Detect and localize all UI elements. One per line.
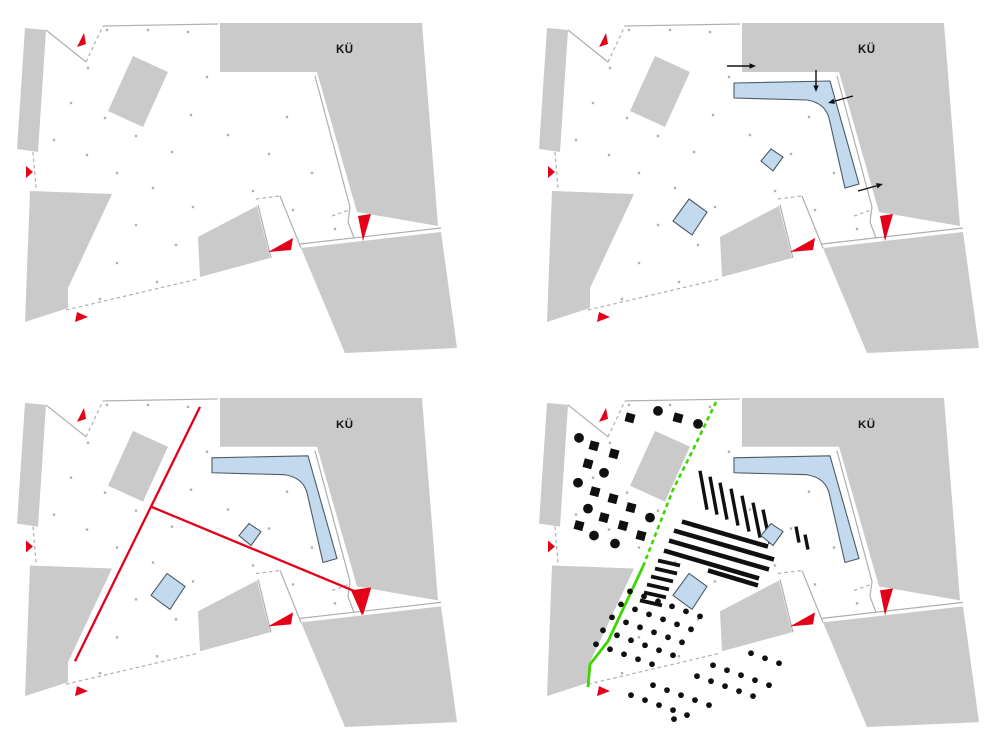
entrance-arrow-west <box>26 166 33 178</box>
steps-bar <box>651 576 673 581</box>
plaza-dot <box>106 404 108 406</box>
planting-dot <box>632 606 638 612</box>
plaza-dot <box>728 76 730 78</box>
plaza-dot <box>206 451 208 453</box>
steps-bar <box>644 592 666 597</box>
plaza-dot <box>104 491 106 493</box>
tree-circle <box>653 406 663 416</box>
plan-group: KÜ <box>17 23 457 353</box>
ku-label: KÜ <box>336 418 354 431</box>
new-pavilion-large <box>673 199 707 235</box>
building-block-ku <box>742 23 960 226</box>
entrance-arrow-southwest <box>75 686 88 696</box>
building-block-southeast <box>823 232 979 353</box>
plaza-dot <box>252 564 254 566</box>
building-block-south <box>198 206 270 277</box>
plaza-dot <box>86 528 88 530</box>
tree-square <box>598 512 609 523</box>
plaza-dot <box>87 67 89 69</box>
plaza-dot <box>638 262 640 264</box>
plaza-dot <box>609 442 611 444</box>
plaza-dot <box>171 525 173 527</box>
planting-dot <box>656 702 662 708</box>
plaza-dot <box>638 172 640 174</box>
entrance-arrow-west <box>548 541 555 553</box>
plaza-dot <box>334 602 336 604</box>
plaza-dot <box>156 281 158 283</box>
site-diagram-grid: KÜ KÜ KÜ KÜ <box>0 0 1000 749</box>
plot-boundary-dashed <box>555 527 558 563</box>
plot-boundary-dashed <box>608 26 625 62</box>
plot-boundary-dashed <box>588 279 720 310</box>
plot-boundary <box>103 24 218 26</box>
plaza-dot <box>749 134 751 136</box>
plot-boundary-dashed <box>778 196 802 199</box>
plaza-dot <box>87 442 89 444</box>
planting-dot <box>664 687 670 693</box>
planting-dot <box>708 678 714 684</box>
paving-bar <box>710 477 717 515</box>
tree-square <box>582 458 593 469</box>
plaza-dot <box>669 29 671 31</box>
tree-square <box>635 530 646 541</box>
building-block-northwest <box>108 56 168 127</box>
tree-circle <box>573 478 583 488</box>
plaza-dot <box>638 546 640 548</box>
plaza-dot <box>334 228 336 230</box>
planting-dot <box>600 627 606 633</box>
entrance-arrow-north <box>77 408 86 422</box>
paving-bar <box>753 503 760 538</box>
planting-dot <box>678 692 684 698</box>
plaza-dot <box>678 655 680 657</box>
ku-label: KÜ <box>336 43 354 56</box>
entrance-arrow-south-center <box>268 612 293 626</box>
plaza-dot <box>286 116 288 118</box>
planting-dot <box>651 629 657 635</box>
paving-bar <box>731 489 738 526</box>
steps-bar <box>658 561 680 566</box>
building-block-ku <box>220 398 438 600</box>
plaza-dot <box>175 244 177 246</box>
planting-dot <box>724 667 730 673</box>
tree-square <box>617 520 628 531</box>
tree-square <box>573 520 584 531</box>
planting-dot <box>623 619 629 625</box>
plaza-dot <box>749 508 751 510</box>
building-block-northwest <box>630 56 690 127</box>
plaza-dot <box>608 154 610 156</box>
planting-dot <box>752 677 758 683</box>
planting-dot <box>736 688 742 694</box>
planting-dot <box>642 642 648 648</box>
plaza-dot <box>790 527 792 529</box>
plaza-dot <box>152 561 154 563</box>
entrance-arrow-southwest <box>75 312 88 322</box>
building-block-south <box>198 580 270 651</box>
planting-dot <box>641 594 647 600</box>
plaza-dot <box>311 172 313 174</box>
entrance-arrow-south-center <box>790 612 815 626</box>
plaza-dot <box>774 190 776 192</box>
plot-boundary-dashed <box>555 152 558 188</box>
planting-dot <box>670 652 676 658</box>
planting-dot <box>646 611 652 617</box>
planting-dot <box>593 641 599 647</box>
entrance-arrow-south-center <box>268 238 293 252</box>
plaza-dot <box>621 298 623 300</box>
site-plan-existing: KÜ <box>0 0 500 375</box>
plaza-dot <box>135 598 137 600</box>
tree-square <box>624 412 635 423</box>
plaza-dot <box>116 172 118 174</box>
plot-boundary-dashed <box>854 210 871 216</box>
panel-existing-site: KÜ <box>0 0 500 375</box>
entrance-arrow-north <box>599 33 608 47</box>
plaza-dot <box>714 206 716 208</box>
plaza-dot <box>638 636 640 638</box>
plaza-dot <box>116 546 118 548</box>
plaza-dot <box>709 406 711 408</box>
plaza-dot <box>608 528 610 530</box>
plaza-dot <box>575 139 577 141</box>
entrance-arrow-west <box>548 166 555 178</box>
plaza-dot <box>814 583 816 585</box>
plaza-dot <box>190 114 192 116</box>
entrance-arrow-west <box>26 541 33 553</box>
plot-boundary-dashed <box>778 570 802 573</box>
tree-circle <box>645 513 655 523</box>
planting-dot <box>635 656 641 662</box>
site-plan-landscape: KÜ <box>500 375 1000 749</box>
plaza-dot <box>712 114 714 116</box>
plaza-dot <box>268 153 270 155</box>
planting-dot <box>750 693 756 699</box>
building-strip-west <box>539 403 568 527</box>
planting-dot <box>607 646 613 652</box>
plaza-dot <box>156 655 158 657</box>
plaza-dot <box>657 509 659 511</box>
building-block-south <box>720 206 792 277</box>
plaza-dot <box>626 117 628 119</box>
planting-dot <box>609 614 615 620</box>
planting-dot <box>665 634 671 640</box>
planting-dot <box>694 673 700 679</box>
steps-bar <box>647 584 669 589</box>
plaza-dot <box>192 206 194 208</box>
tree-square <box>625 502 636 513</box>
planting-dot <box>692 697 698 703</box>
plot-boundary-dashed <box>86 401 103 437</box>
plaza-dot <box>808 490 810 492</box>
new-pavilion-large <box>673 573 707 609</box>
planting-dot <box>627 589 633 595</box>
plaza-dot <box>192 580 194 582</box>
tree-square <box>672 412 683 423</box>
plaza-dot <box>147 404 149 406</box>
planting-dot <box>669 603 675 609</box>
building-strip-west <box>539 28 568 152</box>
building-block-ku <box>742 398 960 600</box>
plaza-dot <box>592 102 594 104</box>
planting-dot <box>748 650 754 656</box>
planting-dot <box>642 697 648 703</box>
plaza-dot <box>206 76 208 78</box>
plaza-dot <box>147 29 149 31</box>
planting-dot <box>670 707 676 713</box>
paving-bar <box>796 527 799 543</box>
plot-boundary <box>625 24 740 26</box>
planting-dot <box>697 613 703 619</box>
new-pavilion-small <box>761 149 783 171</box>
plot-boundary-dashed <box>33 527 36 563</box>
plaza-dot <box>227 508 229 510</box>
plaza-dot <box>135 224 137 226</box>
planting-dot <box>618 601 624 607</box>
plaza-dot <box>714 580 716 582</box>
tree-circle <box>610 539 620 549</box>
paving-stripe <box>682 522 768 547</box>
plaza-dot <box>187 31 189 33</box>
tree-square <box>607 493 618 504</box>
building-strip-west <box>17 403 46 527</box>
planting-dot <box>722 683 728 689</box>
planting-dot <box>674 621 680 627</box>
site-plan-axes: KÜ <box>0 375 500 749</box>
new-pavilion-large <box>151 573 185 609</box>
plaza-dot <box>53 513 55 515</box>
plot-boundary-dashed <box>86 26 103 62</box>
paving-bar <box>805 535 808 550</box>
planting-dot <box>628 692 634 698</box>
plot-boundary-dashed <box>256 196 280 199</box>
paving-bar <box>720 483 727 520</box>
plaza-dot <box>790 153 792 155</box>
planting-dot <box>762 655 768 661</box>
plaza-dot <box>728 451 730 453</box>
plaza-dot <box>227 134 229 136</box>
entrance-arrow-south-center <box>790 238 815 252</box>
building-block-southeast <box>823 606 979 727</box>
plaza-dot <box>628 404 630 406</box>
plot-boundary-dashed <box>66 653 198 684</box>
tree-square <box>589 486 600 497</box>
plaza-dot <box>657 224 659 226</box>
plaza-dot <box>814 209 816 211</box>
paving-bar <box>742 496 749 532</box>
plot-boundary-dashed <box>256 570 280 573</box>
plaza-dot <box>70 102 72 104</box>
steps-bar <box>655 568 677 573</box>
plaza-dot <box>171 151 173 153</box>
plaza-dot <box>135 509 137 511</box>
plaza-dot <box>657 135 659 137</box>
plaza-dot <box>252 190 254 192</box>
tree-square <box>608 448 619 459</box>
planting-dot <box>738 672 744 678</box>
planting-dot <box>688 626 694 632</box>
plot-boundary <box>103 399 218 401</box>
plaza-dot <box>774 564 776 566</box>
plot-boundary-dashed <box>66 279 198 310</box>
plaza-dot <box>609 67 611 69</box>
plaza-dot <box>99 298 101 300</box>
planting-dot <box>671 716 677 722</box>
plot-boundary-dashed <box>608 401 625 437</box>
plot-boundary-dashed <box>332 210 349 216</box>
building-strip-west <box>17 28 46 152</box>
plaza-dot <box>70 477 72 479</box>
building-block-southeast <box>301 606 457 727</box>
planting-dot <box>649 661 655 667</box>
planting-dot <box>679 639 685 645</box>
planting-dot <box>710 662 716 668</box>
plaza-dot <box>697 244 699 246</box>
plaza-dot <box>621 672 623 674</box>
plaza-dot <box>856 602 858 604</box>
plaza-dot <box>116 636 118 638</box>
plaza-dot <box>693 151 695 153</box>
plot-boundary-dashed <box>854 584 871 590</box>
ku-label: KÜ <box>858 43 876 56</box>
planting-dot <box>706 702 712 708</box>
plaza-dot <box>268 527 270 529</box>
plaza-dot <box>292 583 294 585</box>
plan-group: KÜ <box>539 398 979 727</box>
planting-dot <box>614 632 620 638</box>
planting-dot <box>621 651 627 657</box>
plaza-dot <box>116 262 118 264</box>
planting-dot <box>766 682 772 688</box>
planting-dot <box>650 682 656 688</box>
ku-label: KÜ <box>858 418 876 431</box>
plaza-dot <box>833 546 835 548</box>
plaza-dot <box>99 672 101 674</box>
planting-dot <box>637 624 643 630</box>
planting-dot <box>656 647 662 653</box>
new-l-building <box>212 456 337 563</box>
plaza-dot <box>190 488 192 490</box>
plan-group: KÜ <box>17 398 457 727</box>
plot-boundary-dashed <box>588 653 720 684</box>
planting-dot <box>683 608 689 614</box>
plaza-dot <box>626 491 628 493</box>
new-l-building <box>734 81 859 188</box>
panel-axes-concept: KÜ <box>0 375 500 749</box>
new-pavilion-small <box>239 524 261 546</box>
panel-landscape-concept: KÜ <box>500 375 1000 749</box>
plot-boundary <box>625 399 740 401</box>
plaza-dot <box>286 490 288 492</box>
plaza-dot <box>856 228 858 230</box>
building-block-south <box>720 580 792 651</box>
plaza-dot <box>575 513 577 515</box>
entrance-arrow-southwest <box>597 686 610 696</box>
entrance-arrow-southwest <box>597 312 610 322</box>
plaza-dot <box>833 172 835 174</box>
site-plan-access: KÜ <box>500 0 1000 375</box>
plaza-dot <box>135 135 137 137</box>
tree-circle <box>599 468 609 478</box>
planting-dot <box>655 599 661 605</box>
plaza-dot <box>53 139 55 141</box>
plaza-dot <box>592 477 594 479</box>
planting-dot <box>628 637 634 643</box>
plaza-dot <box>152 187 154 189</box>
entrance-arrow-north <box>77 33 86 47</box>
tree-square <box>588 440 599 451</box>
plaza-dot <box>709 31 711 33</box>
plaza-dot <box>674 187 676 189</box>
entrance-arrow-north <box>599 408 608 422</box>
tree-circle <box>574 433 584 443</box>
plaza-dot <box>628 29 630 31</box>
plot-boundary-dashed <box>33 152 36 188</box>
planting-dot <box>684 712 690 718</box>
plaza-dot <box>175 618 177 620</box>
planting-dot <box>660 616 666 622</box>
new-pavilion-small <box>761 524 783 546</box>
plan-group: KÜ <box>539 23 979 353</box>
plaza-dot <box>808 116 810 118</box>
tree-circle <box>693 419 703 429</box>
tree-circle <box>589 531 599 541</box>
paving-bar <box>700 471 707 510</box>
plaza-dot <box>104 117 106 119</box>
panel-access-concept: KÜ <box>500 0 1000 375</box>
building-block-northwest <box>630 431 690 502</box>
tree-circle <box>583 504 593 514</box>
building-block-southeast <box>301 232 457 353</box>
plaza-dot <box>292 209 294 211</box>
building-block-ku <box>220 23 438 226</box>
plaza-dot <box>187 406 189 408</box>
plaza-dot <box>669 404 671 406</box>
planting-dot <box>776 660 782 666</box>
plaza-dot <box>311 546 313 548</box>
plaza-dot <box>106 29 108 31</box>
plaza-dot <box>86 154 88 156</box>
plaza-dot <box>678 281 680 283</box>
